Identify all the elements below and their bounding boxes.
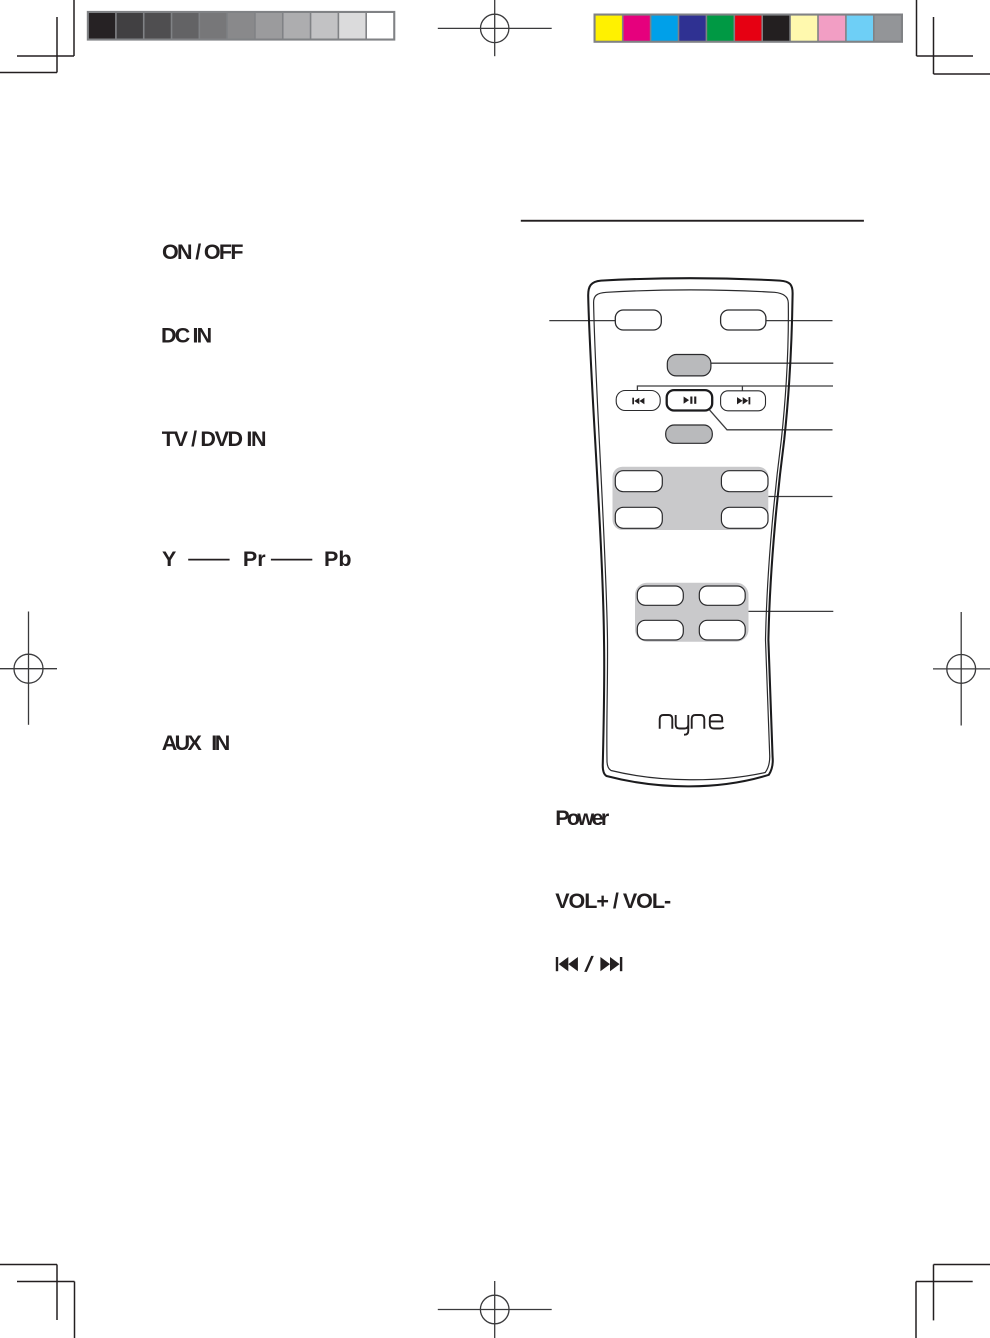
svg-text:DC IN: DC IN [161,324,212,348]
svg-text:Power: Power [555,806,610,830]
svg-text:ON / OFF: ON / OFF [162,240,244,264]
svg-text:IN: IN [211,731,230,755]
svg-text:Y: Y [162,547,176,571]
svg-text:TV / DVD IN: TV / DVD IN [162,427,267,451]
svg-text:AUX: AUX [162,731,203,755]
svg-text:VOL+ / VOL-: VOL+ / VOL- [555,889,671,913]
svg-text:Pb: Pb [324,547,351,571]
svg-text:Pr: Pr [243,547,266,571]
